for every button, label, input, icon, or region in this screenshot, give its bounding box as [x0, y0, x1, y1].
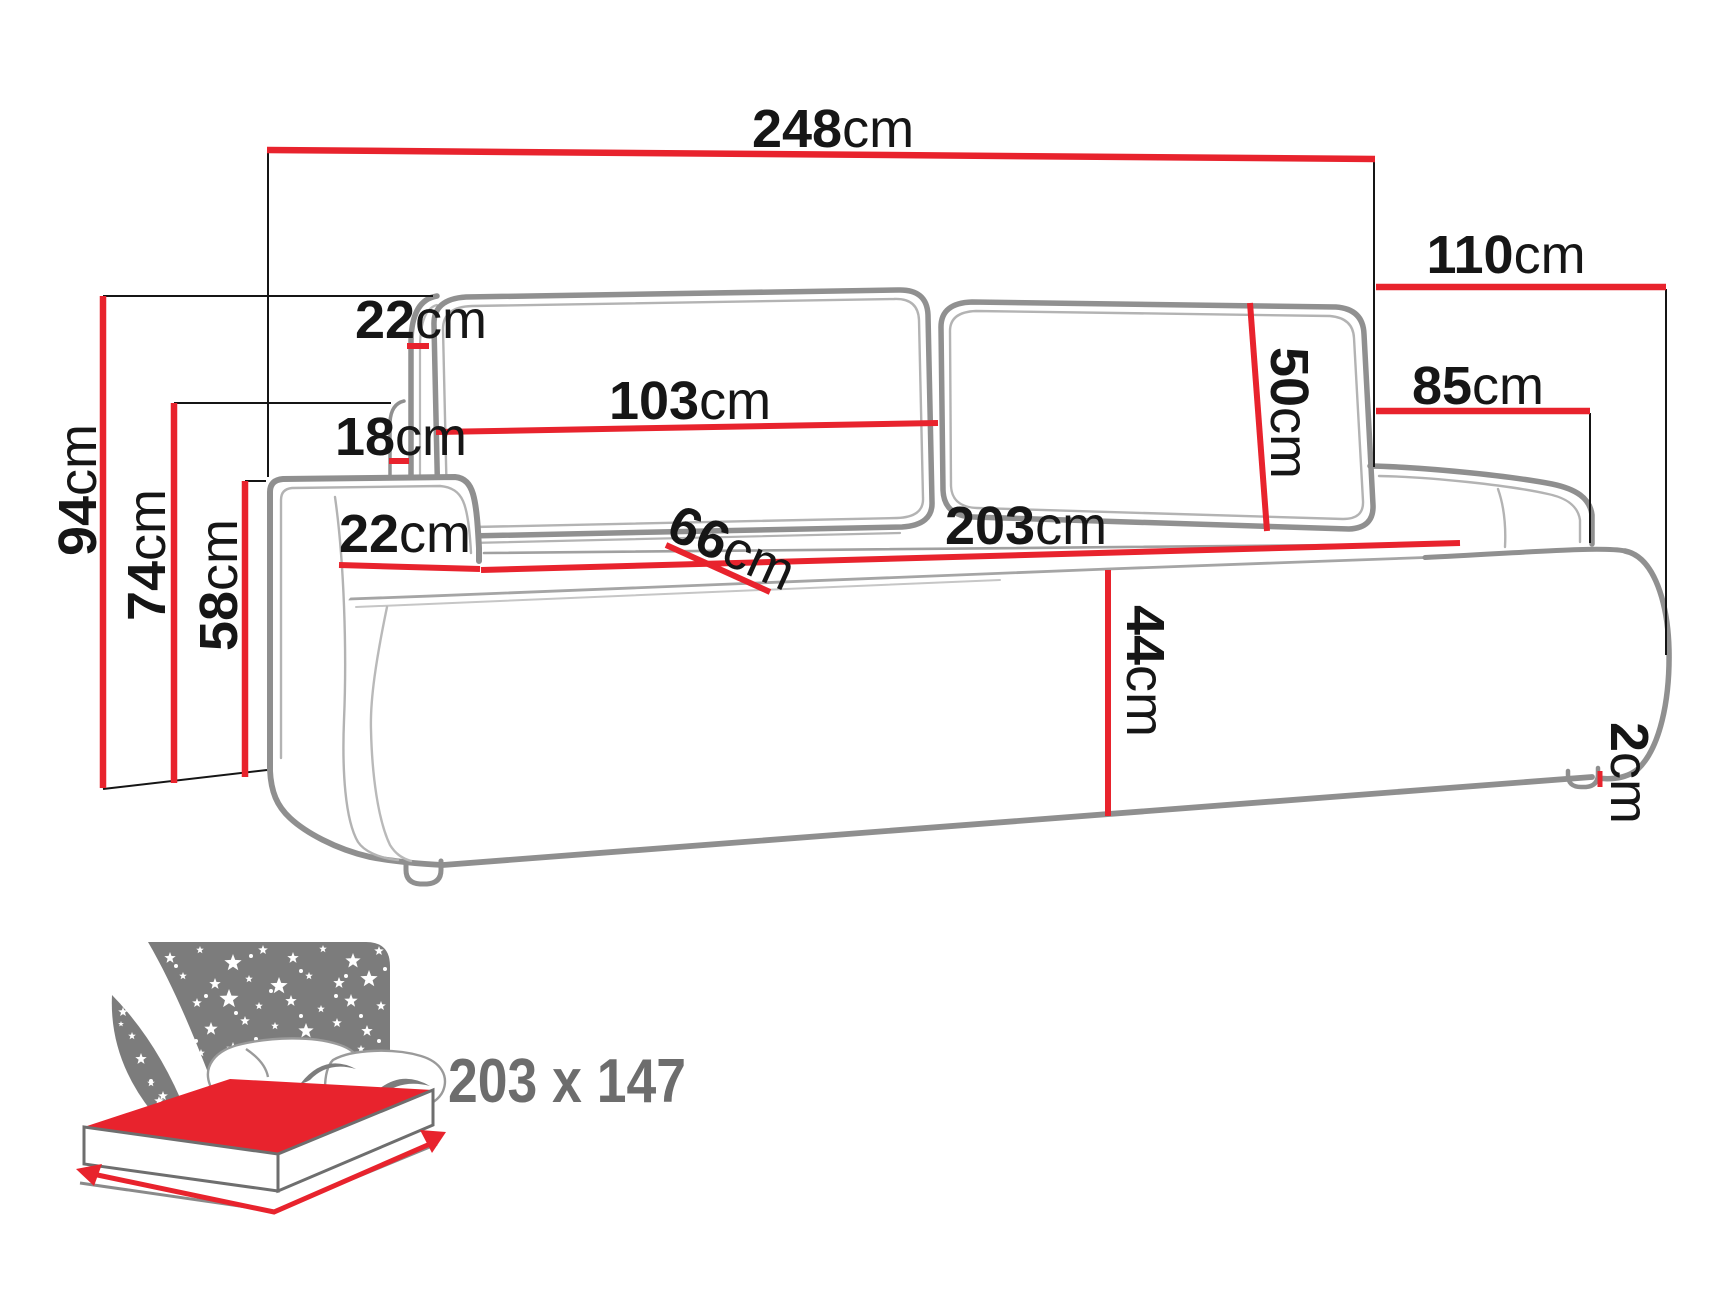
- svg-text:248cm: 248cm: [752, 99, 914, 159]
- svg-text:85cm: 85cm: [1412, 356, 1544, 416]
- svg-text:203 x 147: 203 x 147: [448, 1047, 686, 1116]
- svg-text:50cm: 50cm: [1259, 347, 1319, 479]
- svg-text:110cm: 110cm: [1426, 225, 1585, 285]
- svg-text:22cm: 22cm: [355, 290, 487, 350]
- svg-text:203cm: 203cm: [945, 496, 1107, 556]
- svg-text:58cm: 58cm: [189, 519, 249, 651]
- svg-text:2cm: 2cm: [1599, 722, 1659, 824]
- svg-text:22cm: 22cm: [339, 504, 471, 564]
- svg-text:18cm: 18cm: [335, 407, 467, 467]
- svg-text:44cm: 44cm: [1115, 605, 1175, 737]
- svg-text:103cm: 103cm: [609, 371, 771, 431]
- svg-text:74cm: 74cm: [117, 489, 177, 621]
- svg-text:94cm: 94cm: [48, 424, 108, 556]
